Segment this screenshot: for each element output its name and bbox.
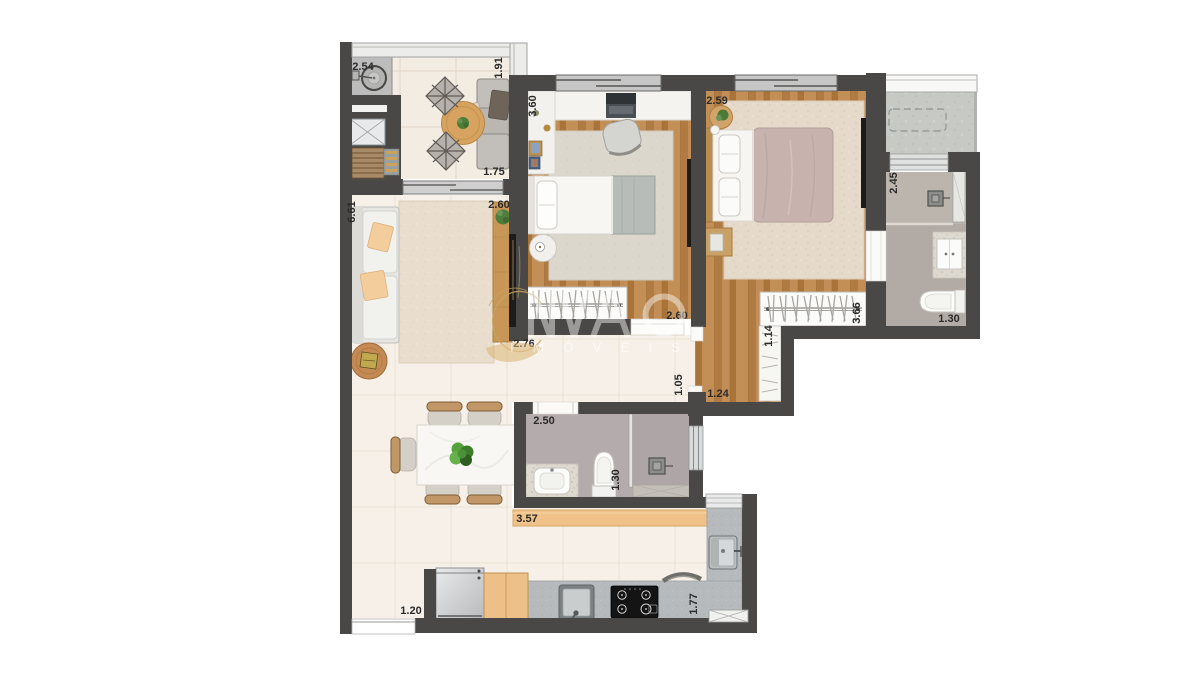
svg-text:6.61: 6.61 (346, 201, 358, 222)
svg-text:1.30: 1.30 (610, 469, 622, 490)
svg-text:2.60: 2.60 (488, 199, 509, 211)
svg-text:2.59: 2.59 (706, 95, 727, 107)
svg-text:3.60: 3.60 (527, 95, 539, 116)
svg-text:3.66: 3.66 (851, 302, 863, 323)
svg-text:1.05: 1.05 (673, 374, 685, 395)
svg-text:IMÓVEIS: IMÓVEIS (510, 340, 699, 355)
svg-text:1.91: 1.91 (493, 57, 505, 78)
svg-text:3.57: 3.57 (516, 513, 537, 525)
svg-text:1.77: 1.77 (688, 593, 700, 614)
svg-text:2.45: 2.45 (888, 172, 900, 193)
svg-text:1.30: 1.30 (938, 313, 959, 325)
svg-text:1.20: 1.20 (400, 605, 421, 617)
svg-text:2.50: 2.50 (533, 415, 554, 427)
svg-text:1.75: 1.75 (483, 166, 504, 178)
svg-text:1.14: 1.14 (763, 324, 775, 346)
svg-text:1.24: 1.24 (707, 388, 729, 400)
svg-text:2.54: 2.54 (352, 61, 374, 73)
